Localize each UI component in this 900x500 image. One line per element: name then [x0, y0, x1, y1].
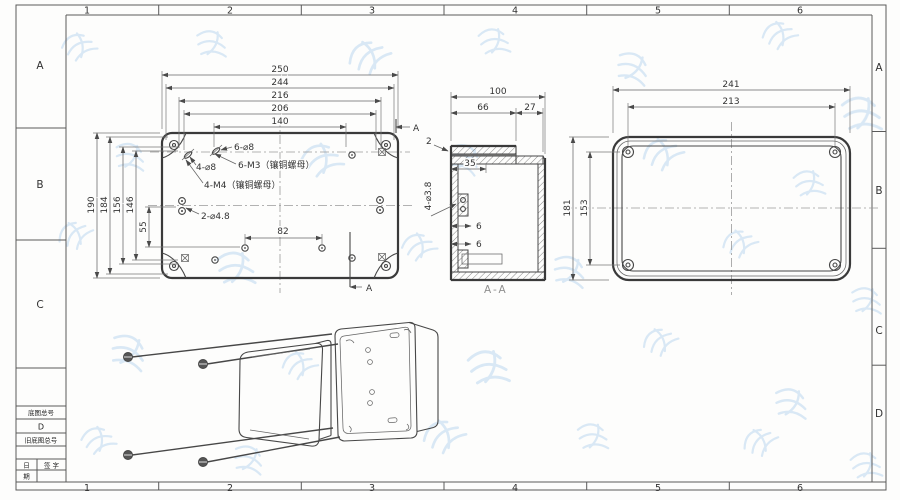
dim-6-lower: 6	[476, 240, 482, 250]
lid-view-dimensions: 241 213 181 153	[563, 80, 850, 280]
note-2-d48: 2-⌀4.8	[201, 212, 230, 222]
title-date-top: 日	[23, 462, 30, 470]
zone-col-top-1: 1	[84, 6, 90, 17]
dim-82-group: 82	[245, 227, 322, 244]
zone-col-top-6: 6	[797, 6, 803, 17]
section-view-dimensions: 100 66 27 2 35 4-⌀3.8 6 6	[424, 87, 545, 250]
dim-244: 244	[271, 78, 288, 88]
dim-100: 100	[489, 87, 506, 97]
lid-view: 241 213 181 153	[563, 80, 880, 295]
note-6-m3: 6-M3（镶铜螺母）	[238, 159, 314, 171]
zone-col-top-2: 2	[227, 6, 233, 17]
title-base-drawing-no: 底图总号	[28, 408, 55, 417]
dim-206: 206	[271, 104, 288, 114]
base-view-notes: 6-⌀8 4-⌀8 6-M3（镶铜螺母） 4-M4（镶铜螺母） 2-⌀4.8	[186, 143, 314, 222]
base-view: 250 244 216 206 140 190 184 156 146 55	[87, 65, 420, 294]
section-arrow-label-top: A	[413, 124, 420, 134]
title-old-drawing-no: 旧底图总号	[25, 436, 58, 445]
dim-66: 66	[477, 103, 489, 113]
section-view: 100 66 27 2 35 4-⌀3.8 6 6 A-A	[424, 87, 545, 296]
dim-27: 27	[524, 103, 535, 113]
dim-156: 156	[113, 196, 123, 213]
zone-row-left-c: C	[36, 299, 43, 311]
zone-row-left-a: A	[36, 60, 44, 72]
exploded-body	[335, 322, 438, 441]
zone-col-top-4: 4	[512, 6, 518, 17]
exploded-view	[124, 322, 439, 466]
dim-181: 181	[563, 199, 573, 216]
dim-55: 55	[139, 221, 149, 232]
dim-190: 190	[87, 196, 97, 213]
dim-241: 241	[722, 80, 739, 90]
drawing-sheet: 1 2 3 4 5 6 1 2 3 4 5 6 A B C A B C D	[0, 0, 900, 500]
dim-35: 35	[464, 159, 475, 169]
note-6-d8: 6-⌀8	[234, 143, 254, 153]
zone-col-bottom-4: 4	[512, 483, 518, 494]
zone-row-left-b: B	[36, 179, 43, 191]
title-date-bottom: 期	[23, 473, 30, 481]
zone-row-right-d: D	[875, 408, 883, 420]
dim-153: 153	[580, 199, 590, 216]
zone-row-right-a: A	[875, 62, 883, 74]
title-revision: D	[38, 423, 44, 432]
zone-col-top-5: 5	[655, 6, 661, 17]
zone-col-top-3: 3	[369, 6, 375, 17]
section-arrow-label-bottom: A	[366, 284, 373, 294]
zone-col-bottom-1: 1	[84, 483, 90, 494]
zone-col-bottom-6: 6	[797, 483, 803, 494]
dim-140: 140	[271, 117, 288, 127]
section-view-label: A-A	[484, 284, 508, 296]
zone-col-bottom-2: 2	[227, 483, 233, 494]
dim-213: 213	[722, 97, 739, 107]
note-4-d8: 4-⌀8	[196, 163, 216, 173]
dim-216: 216	[271, 91, 288, 101]
dim-6-upper: 6	[476, 222, 482, 232]
note-4-d38: 4-⌀3.8	[424, 181, 434, 210]
assembly-screws	[124, 334, 341, 467]
dim-146: 146	[126, 196, 136, 213]
drawing-canvas: 1 2 3 4 5 6 1 2 3 4 5 6 A B C A B C D	[0, 0, 900, 500]
title-block: 底图总号 D 旧底图总号 日 签 字 期	[16, 368, 66, 482]
dim-2: 2	[426, 137, 432, 147]
watermark-pattern	[54, 16, 889, 481]
dim-82: 82	[277, 227, 288, 237]
note-4-m4: 4-M4（镶铜螺母）	[204, 179, 280, 191]
title-signature: 签 字	[44, 461, 60, 470]
zone-col-bottom-3: 3	[369, 483, 375, 494]
zone-row-right-b: B	[875, 185, 882, 197]
dim-250: 250	[271, 65, 288, 75]
zone-col-bottom-5: 5	[655, 483, 661, 494]
dim-184: 184	[100, 196, 110, 213]
zone-row-right-c: C	[875, 325, 882, 337]
